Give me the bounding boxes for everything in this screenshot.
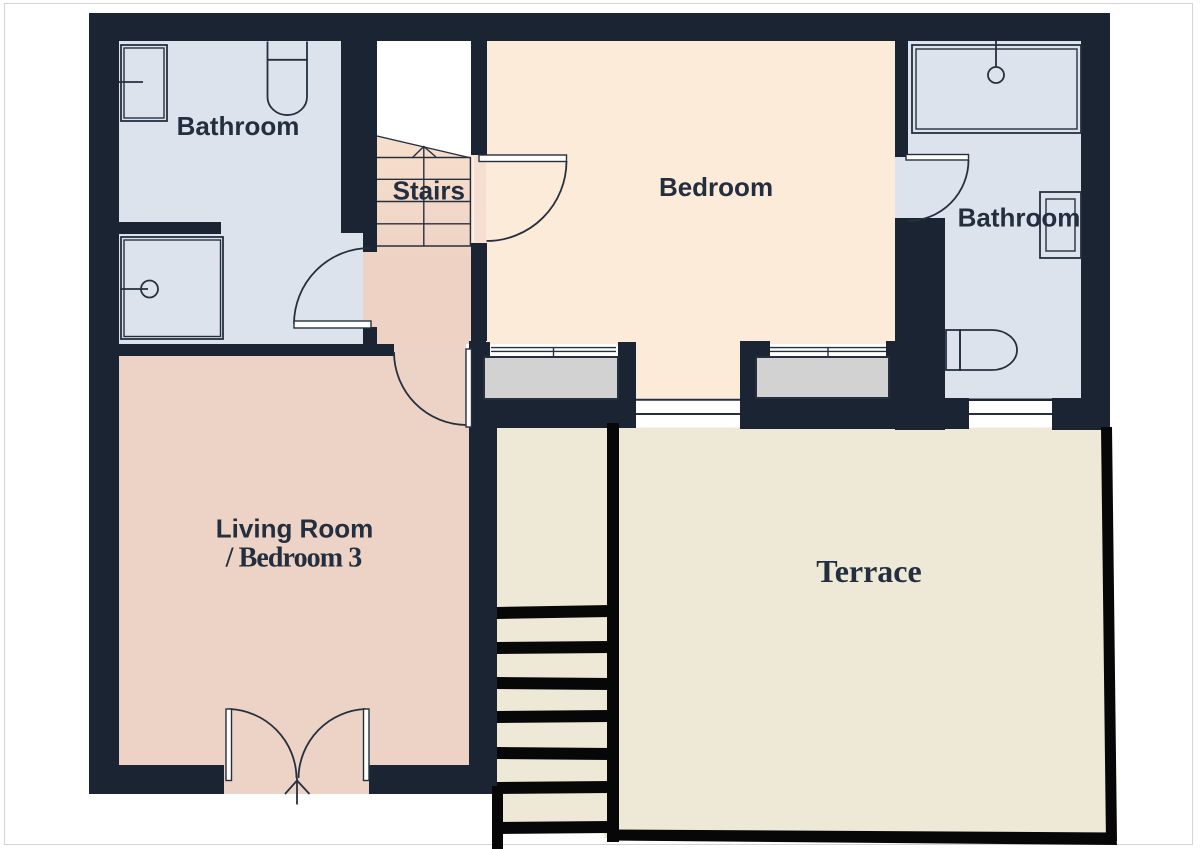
svg-text:Bathroom: Bathroom — [177, 111, 300, 141]
svg-text:Bedroom: Bedroom — [659, 172, 773, 202]
svg-text:/ Bedroom 3: / Bedroom 3 — [225, 543, 363, 574]
svg-text:Bathroom: Bathroom — [958, 203, 1081, 233]
svg-text:Living Room: Living Room — [216, 514, 373, 544]
svg-text:Stairs: Stairs — [393, 176, 465, 206]
svg-text:Terrace: Terrace — [816, 553, 921, 589]
